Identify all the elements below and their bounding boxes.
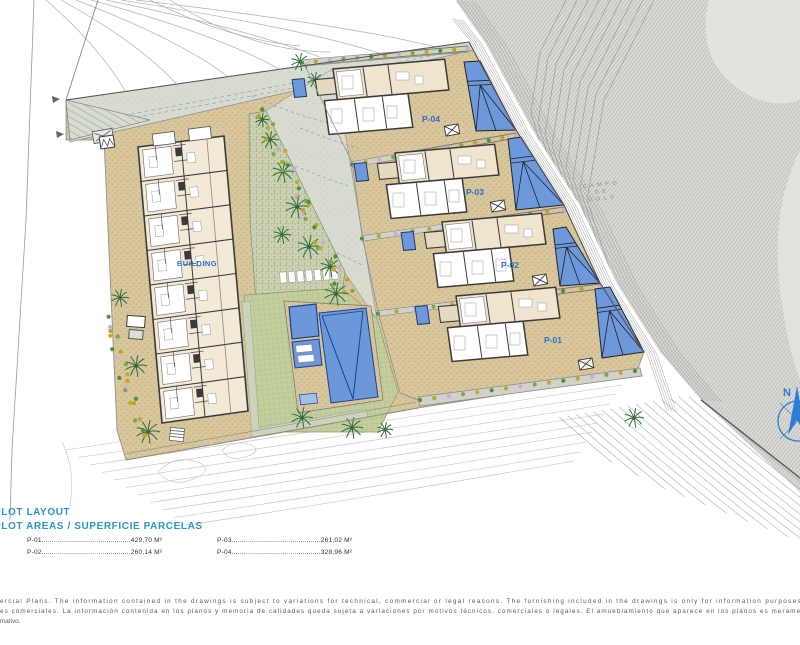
- svg-text:es comerciales. La información: es comerciales. La información contenida…: [0, 608, 800, 615]
- svg-text:P-03..........................: P-03....................................…: [217, 537, 353, 544]
- svg-text:P-03: P-03: [466, 187, 484, 197]
- svg-text:PLOT LAYOUT: PLOT LAYOUT: [0, 507, 70, 518]
- svg-text:BUILDING: BUILDING: [177, 259, 217, 268]
- svg-text:P-01..........................: P-01....................................…: [27, 537, 163, 544]
- svg-text:P-01: P-01: [544, 335, 562, 345]
- svg-text:mativo.: mativo.: [0, 618, 21, 625]
- svg-text:P-02: P-02: [501, 260, 519, 270]
- svg-text:P-02..........................: P-02....................................…: [27, 549, 163, 556]
- svg-text:P-04..........................: P-04....................................…: [217, 549, 353, 556]
- svg-text:N: N: [783, 387, 791, 399]
- svg-text:PLOT AREAS / SUPERFICIE PARCEL: PLOT AREAS / SUPERFICIE PARCELAS: [0, 521, 203, 532]
- svg-text:P-04: P-04: [422, 114, 440, 124]
